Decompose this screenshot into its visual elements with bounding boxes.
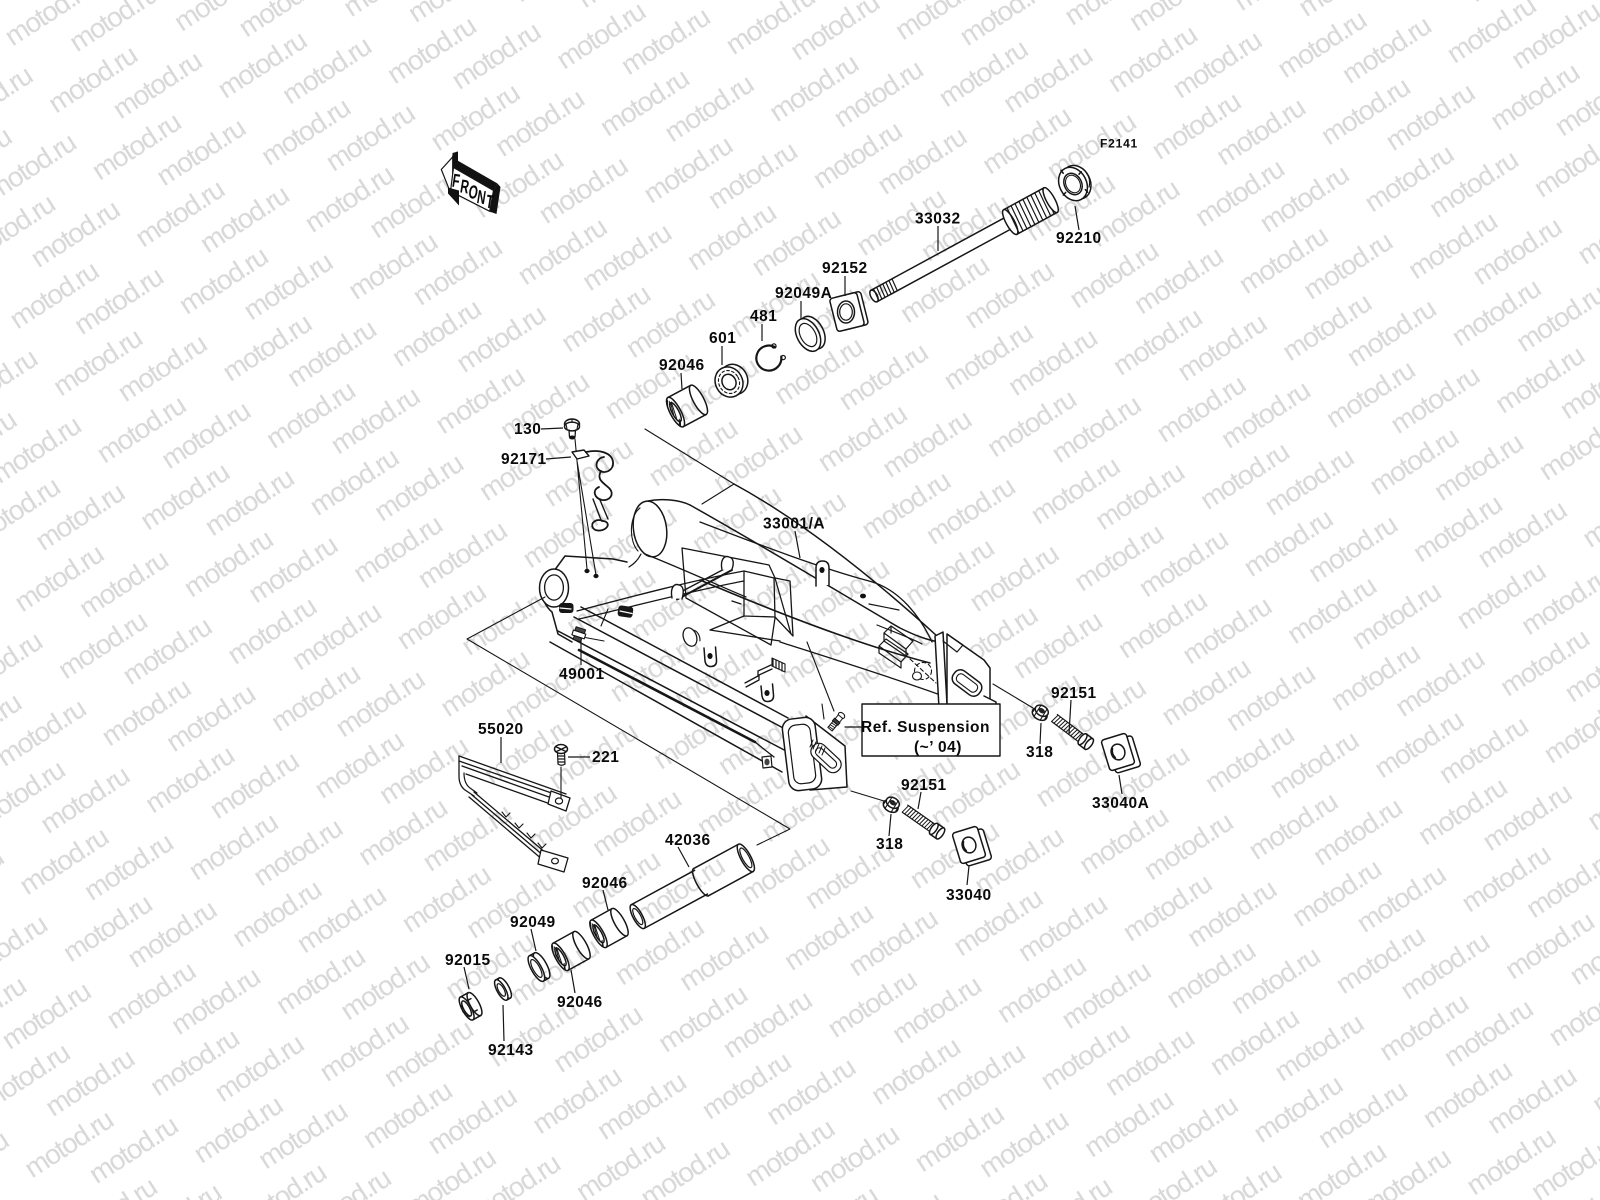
svg-text:92210: 92210 [1056, 230, 1102, 247]
svg-text:33032: 33032 [915, 211, 961, 228]
svg-text:130: 130 [514, 421, 541, 438]
svg-text:33001/A: 33001/A [763, 516, 825, 533]
svg-text:318: 318 [1026, 744, 1053, 761]
svg-text:33040A: 33040A [1092, 795, 1149, 812]
svg-text:92151: 92151 [1051, 685, 1097, 702]
svg-text:92171: 92171 [501, 451, 547, 468]
svg-text:92049: 92049 [510, 914, 556, 931]
svg-text:92151: 92151 [901, 777, 947, 794]
svg-text:42036: 42036 [665, 832, 711, 849]
svg-text:92046: 92046 [582, 875, 628, 892]
svg-text:601: 601 [709, 330, 736, 347]
svg-text:318: 318 [876, 836, 903, 853]
svg-text:92046: 92046 [557, 994, 603, 1011]
svg-text:Ref. Suspension: Ref. Suspension [861, 719, 990, 736]
svg-text:481: 481 [750, 308, 777, 325]
svg-text:92049A: 92049A [775, 285, 832, 302]
svg-text:49001: 49001 [559, 666, 605, 683]
svg-text:55020: 55020 [478, 721, 524, 738]
svg-text:(~’ 04): (~’ 04) [914, 739, 962, 756]
svg-text:33040: 33040 [946, 887, 992, 904]
svg-text:92143: 92143 [488, 1042, 534, 1059]
svg-text:92152: 92152 [822, 260, 868, 277]
svg-text:F2141: F2141 [1100, 137, 1138, 151]
svg-text:92015: 92015 [445, 952, 491, 969]
svg-text:221: 221 [592, 749, 619, 766]
svg-text:92046: 92046 [659, 357, 705, 374]
